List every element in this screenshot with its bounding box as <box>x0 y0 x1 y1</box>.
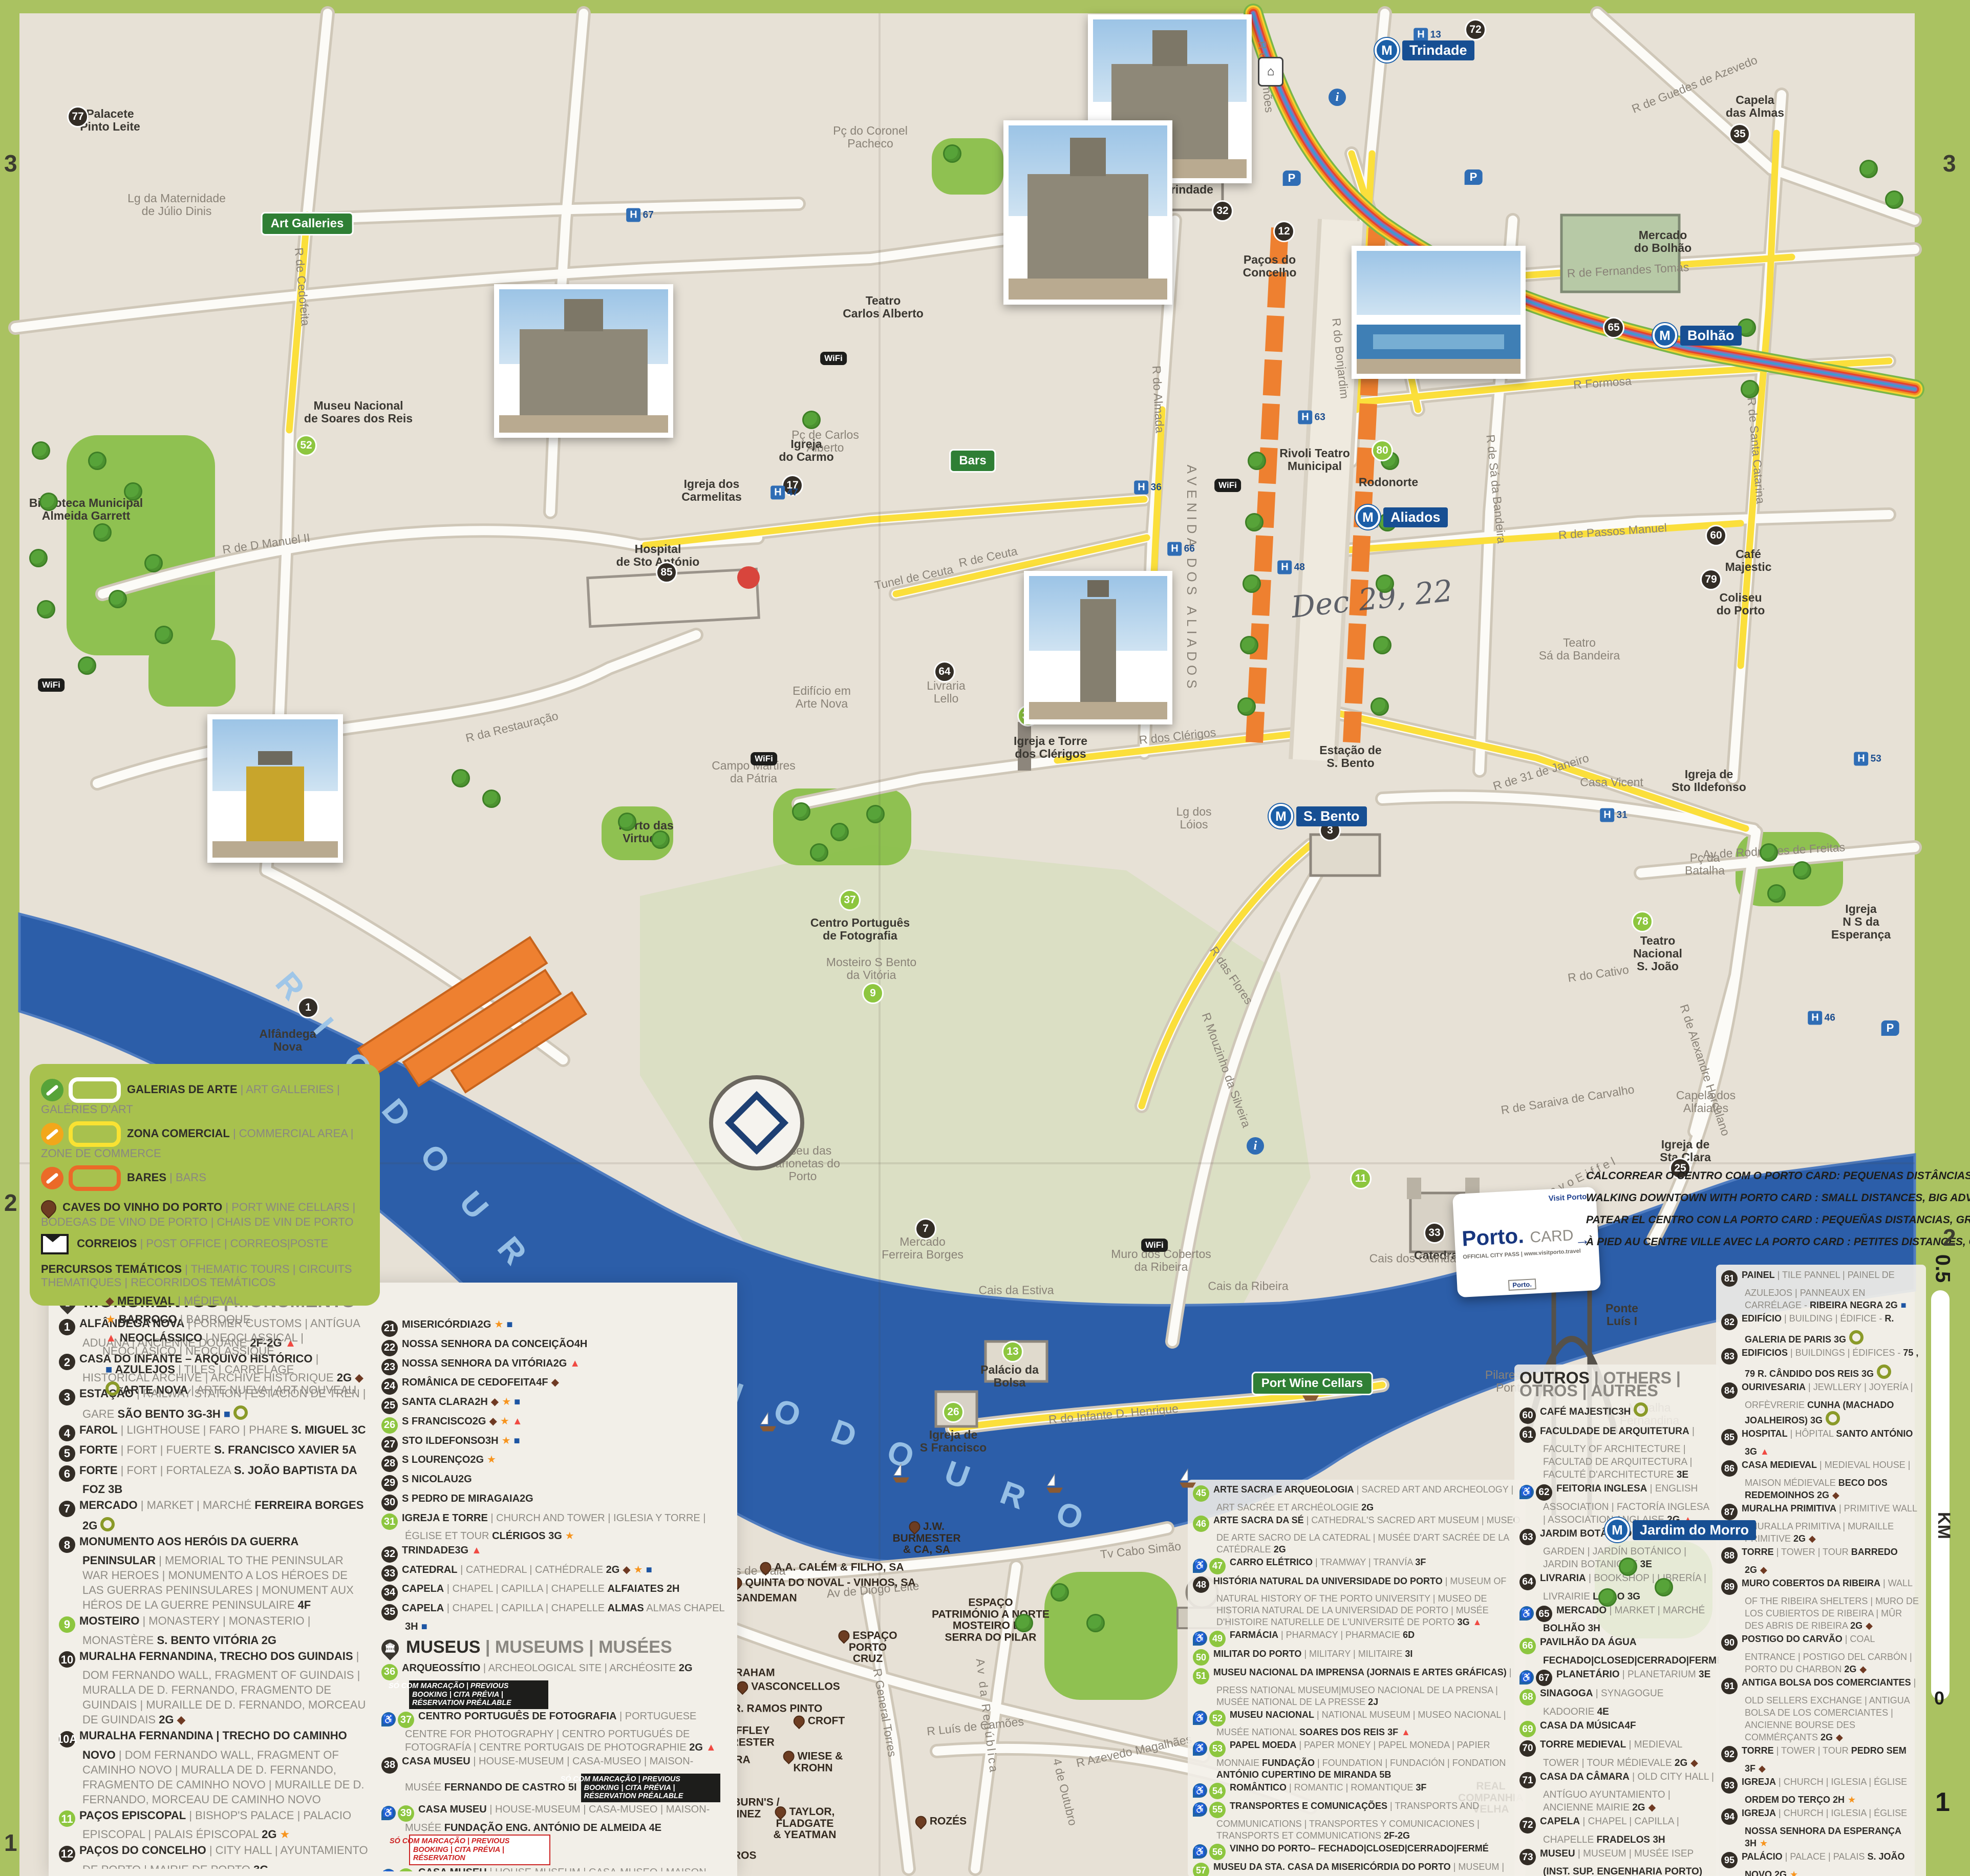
tree-icon <box>1619 1558 1637 1576</box>
medieval-diamond-icon: ◆ <box>1832 1490 1839 1500</box>
map-label: Lg da Maternidade de Júlio Dinis <box>127 192 226 218</box>
legend-item-67: ♿67PLANETÁRIO | PLANETARIUM 3E <box>1519 1668 1714 1687</box>
map-marker-85[interactable]: 85 <box>656 562 677 583</box>
porto-card-slogan: CALCORREAR O CENTRO COM O PORTO CARD: PE… <box>1586 1168 1934 1182</box>
item-number-badge: 28 <box>381 1456 398 1472</box>
legend-item-68: 68SINAGOGA | SYNAGOGUE KADOORIE 4E <box>1519 1687 1714 1718</box>
baroque-star-icon: ★ <box>494 1319 503 1330</box>
map-label: Mosteiro S Bento da Vitória <box>826 956 916 982</box>
legend-item-48: 48HISTÓRIA NATURAL DA UNIVERSIDADE DO PO… <box>1193 1575 1521 1629</box>
metro-station-label: Bolhão <box>1680 326 1742 346</box>
map-marker-32[interactable]: 32 <box>1212 200 1233 222</box>
tree-icon <box>943 144 961 163</box>
map-marker-12[interactable]: 12 <box>1273 221 1295 242</box>
legend-item-84: 84OURIVESARIA | JEWLLERY | JOYERÍA | ORF… <box>1721 1381 1921 1426</box>
map-label: Museu Nacional de Soares dos Reis <box>304 399 413 425</box>
baroque-star-icon: ★ <box>502 1396 511 1408</box>
legend-others-column: OUTROS | OTHERS | OTROS | AUTRES 60CAFÉ … <box>1514 1365 1719 1876</box>
medieval-diamond-icon: ◆ <box>1859 1664 1867 1674</box>
legend-item-82: 82EDIFÍCIO | BUILDING | ÉDIFICE - R. GAL… <box>1721 1312 1921 1346</box>
neoclassical-triangle-icon: ▲ <box>706 1742 716 1753</box>
legend-item-73: 73MUSEU | MUSEUM | MUSÉE ISEP (INST. SUP… <box>1519 1847 1714 1876</box>
item-number-badge: 56 <box>1209 1844 1226 1860</box>
legend-area-row: ZONA COMERCIAL | COMMERCIAL AREA | ZONE … <box>41 1121 369 1160</box>
item-number-badge: 72 <box>1519 1817 1536 1834</box>
booking-note: SÓ COM MARCAÇÃO | PREVIOUS BOOKING | CIT… <box>409 1680 548 1709</box>
wifi-icon[interactable]: WiFi <box>1141 1239 1168 1252</box>
photo-inset-tower <box>1024 571 1172 724</box>
wine-cellar-label: CROFT <box>794 1716 845 1728</box>
item-number-badge: 47 <box>1209 1558 1226 1574</box>
area-pill-icon <box>69 1077 121 1103</box>
legend-item-94: 94IGREJA | CHURCH | IGLESIA | ÉGLISE NOS… <box>1721 1807 1921 1849</box>
envelope-icon <box>41 1234 69 1254</box>
hotel-icon-53[interactable]: H53 <box>1854 752 1881 766</box>
scale-1: 1 <box>1935 1787 1950 1818</box>
legend-item-4: 4FAROL | LIGHTHOUSE | FARO | PHARE S. MI… <box>59 1422 371 1442</box>
legend-areas-panel: GALERIAS DE ARTE | ART GALLERIES | GALÉR… <box>30 1064 380 1306</box>
map-sign-port-wine-cellars[interactable]: Port Wine Cellars <box>1252 1372 1373 1395</box>
legend-tour-row: ■ AZULEJOS | TILES | CARRELAGE <box>102 1363 369 1376</box>
item-number-badge: 65 <box>1536 1606 1552 1622</box>
map-label: Mercado Ferreira Borges <box>882 1235 963 1261</box>
map-label: Igreja de Sto Ildefonso <box>1672 768 1746 794</box>
metro-logo-icon: M <box>1653 323 1677 348</box>
porto-card-slogan: PATEAR EL CENTRO CON LA PORTO CARD : PEQ… <box>1586 1212 1934 1226</box>
porto-card-chip: Porto. <box>1508 1278 1536 1291</box>
street-label: R da Restauração <box>464 710 560 745</box>
area-circle-icon <box>41 1167 63 1189</box>
neoclassical-triangle-icon: ▲ <box>1760 1446 1769 1457</box>
legend-item-45: 45ARTE SACRA E ARQUEOLOGIA | SACRED ART … <box>1193 1484 1521 1513</box>
street-label: R de D Manuel II <box>222 531 311 557</box>
item-number-badge: 63 <box>1519 1529 1536 1545</box>
map-marker-80[interactable]: 80 <box>1372 440 1393 461</box>
street-label: R General Torres <box>871 1668 899 1758</box>
map-marker-1[interactable]: 1 <box>297 997 319 1018</box>
legend-item-27: 27STO ILDEFONSO3H★■ <box>381 1435 730 1453</box>
map-marker-11[interactable]: 11 <box>1350 1168 1372 1189</box>
street-label: R do Bonjardim <box>1330 317 1351 399</box>
map-marker-9[interactable]: 9 <box>862 983 884 1004</box>
legend-tour-row: ◆ MEDIEVAL | MÉDIEVAL <box>102 1294 369 1308</box>
map-marker-13[interactable]: 13 <box>1002 1341 1023 1362</box>
visit-porto-label: Visit Porto. <box>1548 1192 1589 1203</box>
wine-cellar-label: ESPAÇO PORTO CRUZ <box>838 1630 897 1665</box>
item-number-badge: 24 <box>381 1378 398 1395</box>
item-number-badge: 33 <box>381 1565 398 1582</box>
tree-icon <box>78 656 96 675</box>
tree-icon <box>88 452 106 470</box>
museum-pin-icon: 🏛 <box>381 1636 402 1660</box>
hotel-icon-36[interactable]: H36 <box>1134 481 1162 495</box>
map-marker-33[interactable]: 33 <box>1424 1222 1445 1244</box>
hotel-icon-46[interactable]: H46 <box>1808 1011 1835 1025</box>
legend-item-8: 8MONUMENTO AOS HERÓIS DA GUERRA PENINSUL… <box>59 1534 371 1613</box>
area-pill-icon <box>69 1121 121 1147</box>
neoclassical-triangle-icon: ▲ <box>1401 1727 1410 1737</box>
wheelchair-icon: ♿ <box>381 1806 396 1820</box>
tree-icon <box>1371 697 1389 716</box>
legend-item-61: 61FACULDADE DE ARQUITETURA | FACULTY OF … <box>1519 1425 1714 1482</box>
map-label: Capela das Almas <box>1726 94 1784 119</box>
map-marker-72[interactable]: 72 <box>1465 19 1486 40</box>
azulejos-square-icon: ■ <box>105 1363 112 1376</box>
item-number-badge: 10A <box>59 1731 75 1747</box>
street-label: R das Flores <box>1207 944 1255 1007</box>
item-number-badge: 39 <box>398 1805 414 1822</box>
legend-item-90: 90POSTIGO DO CARVÃO | COAL ENTRANCE | PO… <box>1721 1633 1921 1675</box>
neoclassical-triangle-icon: ▲ <box>472 1545 482 1556</box>
legend-item-25: 25SANTA CLARA2H◆★■ <box>381 1396 730 1414</box>
map-label: Teatro Sá da Bandeira <box>1539 636 1620 662</box>
scale-0-5: 0.5 <box>1931 1254 1954 1283</box>
azulejos-square-icon: ■ <box>506 1319 512 1330</box>
legend-item-10A: 10AMURALHA FERNANDINA | TRECHO DO CAMINH… <box>59 1728 371 1807</box>
street-label: R Azevedo Magalhães <box>1075 1733 1193 1770</box>
item-number-badge: 92 <box>1721 1746 1738 1762</box>
baroque-star-icon: ★ <box>1760 1838 1768 1848</box>
map-label: Rivoli Teatro Municipal <box>1279 447 1350 473</box>
map-sign-art-galleries[interactable]: Art Galleries <box>261 212 354 236</box>
item-number-badge: 53 <box>1209 1741 1226 1757</box>
wine-cellar-icon <box>791 1714 807 1730</box>
map-label: Cais da Ribeira <box>1208 1280 1288 1293</box>
arte-nova-ring-icon <box>100 1517 115 1531</box>
legend-item-71: 71CASA DA CÂMARA | OLD CITY HALL | ANTÍG… <box>1519 1771 1714 1815</box>
item-number-badge: 50 <box>1193 1649 1209 1666</box>
street-label: R dos Clérigos <box>1139 726 1217 747</box>
info-icon[interactable]: i <box>1247 1137 1264 1155</box>
tree-icon <box>29 549 48 567</box>
wheelchair-icon: ♿ <box>381 1712 396 1726</box>
item-number-badge: 86 <box>1721 1460 1738 1477</box>
wheelchair-icon: ♿ <box>1193 1783 1207 1798</box>
map-label: Cais da Estiva <box>978 1284 1054 1297</box>
parking-icon[interactable]: P <box>1881 1020 1899 1036</box>
wheelchair-icon: ♿ <box>1193 1711 1207 1725</box>
item-number-badge: 34 <box>381 1585 398 1601</box>
porto-card[interactable]: Visit Porto. Porto. CARD OFFICIAL CITY P… <box>1452 1187 1601 1297</box>
street-label: R de Ceuta <box>958 545 1019 569</box>
scale-bar <box>1931 1290 1950 1700</box>
legend-item-23: 23NOSSA SENHORA DA VITÓRIA2G▲ <box>381 1357 730 1376</box>
map-marker-79[interactable]: 79 <box>1700 569 1722 590</box>
map-marker-35[interactable]: 35 <box>1729 123 1750 145</box>
hotel-icon-66[interactable]: H66 <box>1167 542 1195 556</box>
map-marker-77[interactable]: 77 <box>67 106 89 127</box>
item-number-badge: 36 <box>381 1664 398 1680</box>
metro-station-label: Aliados <box>1383 507 1448 527</box>
item-number-badge: 5 <box>59 1445 75 1462</box>
item-number-badge: 69 <box>1519 1721 1536 1737</box>
baroque-star-icon: ★ <box>1848 1795 1856 1805</box>
item-number-badge: 4 <box>59 1425 75 1441</box>
wine-cellar-icon <box>913 1814 929 1830</box>
metro-station-bolh-o[interactable]: MBolhão <box>1653 323 1742 348</box>
map-label: Teatro Nacional S. João <box>1633 934 1682 972</box>
map-label: Palácio da Bolsa <box>980 1363 1039 1389</box>
grid-row-2-right: 2 <box>1943 1224 1956 1251</box>
scale-km: KM <box>1934 1512 1954 1539</box>
wifi-icon[interactable]: WiFi <box>38 678 65 692</box>
sailboat-icon <box>757 1411 779 1436</box>
street-label: R do Cativo <box>1567 963 1630 984</box>
map-marker-64[interactable]: 64 <box>934 661 955 683</box>
grid-row-3-left: 3 <box>4 150 17 177</box>
tree-icon <box>482 790 501 808</box>
parking-icon[interactable]: P <box>1283 170 1301 186</box>
hotel-icon-47[interactable]: H47 <box>770 486 798 500</box>
others-header: OUTROS | OTHERS | OTROS | AUTRES <box>1519 1372 1714 1397</box>
street-label: R do Infante D. Henrique <box>1048 1402 1179 1426</box>
museums-header: 🏛MUSEUS | MUSEUMS | MUSÉES <box>381 1639 730 1657</box>
map-label: Igreja dos Carmelitas <box>681 478 742 503</box>
wine-cellar-label: J.W. BURMESTER & CA, SA <box>892 1521 960 1556</box>
map-label: Paços do Concelho <box>1243 253 1297 279</box>
street-label: R do Almada <box>1150 366 1166 434</box>
wheelchair-icon: ♿ <box>1519 1485 1534 1499</box>
tree-icon <box>109 590 127 608</box>
legend-churches2-column: 21MISERICÓRDIA2G★■22NOSSA SENHORA DA CON… <box>381 1318 730 1871</box>
baroque-star-icon: ★ <box>280 1828 290 1841</box>
metro-logo-icon: M <box>1356 505 1380 529</box>
wifi-icon[interactable]: WiFi <box>1214 479 1241 492</box>
legend-tour-row: ★ BARROCO | BARROQUE <box>102 1313 369 1326</box>
tree-icon <box>1243 574 1261 593</box>
porto-card-slogan: À PIED AU CENTRE VILLE AVEC LA PORTO CAR… <box>1586 1234 1934 1248</box>
legend-item-51: 51MUSEU NACIONAL DA IMPRENSA (JORNAIS E … <box>1193 1667 1521 1708</box>
map-marker-7[interactable]: 7 <box>915 1218 936 1240</box>
metro-station-jardim-do-morro[interactable]: MJardim do Morro <box>1605 1518 1756 1542</box>
unesco-world-heritage-badge <box>709 1075 804 1170</box>
wifi-icon[interactable]: WiFi <box>820 352 847 365</box>
item-number-badge: 21 <box>381 1320 398 1337</box>
photo-inset-pool <box>1352 246 1526 379</box>
tree-icon <box>1248 452 1266 470</box>
arte-nova-ring-icon <box>105 1381 120 1396</box>
item-number-badge: 67 <box>1536 1670 1552 1686</box>
legend-item-53: ♿53PAPEL MOEDA | PAPER MONEY | PAPEL MON… <box>1193 1739 1521 1781</box>
item-number-badge: 71 <box>1519 1772 1536 1788</box>
medieval-diamond-icon: ◆ <box>1690 1758 1698 1768</box>
legend-item-21: 21MISERICÓRDIA2G★■ <box>381 1318 730 1337</box>
item-number-badge: 68 <box>1519 1689 1536 1706</box>
area-circle-icon <box>41 1079 63 1101</box>
legend-item-54: ♿54ROMÂNTICO | ROMANTIC | ROMANTIQUE 3F <box>1193 1782 1521 1800</box>
baroque-star-icon: ★ <box>105 1313 116 1326</box>
item-number-badge: 81 <box>1721 1270 1738 1287</box>
street-label: R de 31 de Janeiro <box>1491 752 1590 793</box>
legend-item-22: 22NOSSA SENHORA DA CONCEIÇÃO4H <box>381 1338 730 1356</box>
neoclassical-triangle-icon: ▲ <box>1473 1617 1482 1627</box>
legend-item-26: 26S FRANCISCO2G◆★▲ <box>381 1415 730 1434</box>
legend-item-33: 33CATEDRAL | CATHEDRAL | CATHÉDRALE 2G◆★… <box>381 1564 730 1582</box>
street-label: R Mouzinho da Silveira <box>1200 1011 1253 1129</box>
item-number-badge: 35 <box>381 1604 398 1621</box>
tree-icon <box>810 843 828 862</box>
tree-icon <box>1373 636 1391 654</box>
tree-icon <box>144 554 163 572</box>
legend-others2-column: 81PAINEL | TILE PANNEL | PAINEL DE AZULE… <box>1716 1265 1926 1876</box>
item-number-badge: 83 <box>1721 1348 1738 1365</box>
map-marker-78[interactable]: 78 <box>1632 911 1653 932</box>
legend-item-32: 32TRINDADE3G▲ <box>381 1544 730 1563</box>
map-marker-65[interactable]: 65 <box>1603 317 1624 338</box>
wheelchair-icon: ♿ <box>1519 1670 1534 1685</box>
legend-item-52: ♿52MUSEU NACIONAL | NATIONAL MUSEUM | MU… <box>1193 1709 1521 1739</box>
map-marker-60[interactable]: 60 <box>1705 525 1727 546</box>
legend-item-83: 83EDIFICIOS | BUILDINGS | ÉDIFICES - 75 … <box>1721 1347 1921 1380</box>
street-label: R de Saraiva de Carvalho <box>1500 1083 1635 1117</box>
map-marker-52[interactable]: 52 <box>295 435 317 456</box>
item-number-badge: 89 <box>1721 1579 1738 1595</box>
legend-item-35: 35CAPELA | CHAPEL | CAPILLA | CHAPELLE A… <box>381 1602 730 1633</box>
azulejos-square-icon: ■ <box>1901 1300 1907 1310</box>
wine-cellar-icon <box>758 1560 774 1576</box>
tree-icon <box>830 823 849 841</box>
legend-item-50: 50MILITAR DO PORTO | MILITARY | MILITAIR… <box>1193 1648 1521 1666</box>
legend-tour-row: ARTE NOVA | ARTE NUEVA | ART NOUVEAU <box>102 1381 369 1397</box>
map-label: Centro Português de Fotografia <box>810 916 910 942</box>
metro-station-aliados[interactable]: MAliados <box>1356 505 1448 529</box>
left-luggage-icon[interactable]: ⌂ <box>1258 57 1283 87</box>
legend-item-93: 93IGREJA | CHURCH | IGLESIA | ÉGLISE ORD… <box>1721 1776 1921 1806</box>
neoclassical-triangle-icon: ▲ <box>105 1331 117 1344</box>
map-marker-37[interactable]: 37 <box>839 889 861 911</box>
item-number-badge: 37 <box>398 1712 414 1728</box>
map-label: Lg dos Lóios <box>1176 805 1211 831</box>
metro-station-label: S. Bento <box>1296 806 1367 826</box>
arte-nova-ring-icon <box>1849 1330 1864 1345</box>
arte-nova-ring-icon <box>1634 1402 1648 1417</box>
item-number-badge: 46 <box>1193 1516 1209 1532</box>
item-number-badge: 51 <box>1193 1668 1209 1685</box>
area-pill-icon <box>69 1165 121 1191</box>
street-label: R de Cedofeita <box>292 247 312 326</box>
metro-station-trindade[interactable]: MTrindade <box>1375 38 1474 62</box>
tree-icon <box>618 813 636 831</box>
map-label: Café Majestic <box>1725 548 1772 573</box>
metro-station-label: Jardim do Morro <box>1633 1520 1756 1540</box>
azulejos-square-icon: ■ <box>224 1408 230 1420</box>
metro-logo-icon: M <box>1605 1518 1630 1542</box>
wine-cellar-label: WIESE & KROHN <box>783 1751 843 1774</box>
map-label: Casa Vicent <box>1580 776 1643 789</box>
wheelchair-icon: ♿ <box>1193 1559 1207 1573</box>
item-number-badge: 52 <box>1209 1710 1226 1726</box>
legend-item-37: ♿37CENTRO PORTUGUÊS DE FOTOGRAFIA | PORT… <box>381 1710 730 1755</box>
tree-icon <box>802 411 821 429</box>
wifi-icon[interactable]: WiFi <box>751 752 777 765</box>
legend-item-30: 30S PEDRO DE MIRAGAIA2G <box>381 1493 730 1511</box>
legend-item-28: 28S LOURENÇO2G★ <box>381 1454 730 1472</box>
tree-icon <box>32 441 50 460</box>
street-label: R Luís de Camões <box>926 1715 1024 1738</box>
hotel-icon-48[interactable]: H48 <box>1277 561 1305 574</box>
legend-item-31: 31IGREJA E TORRE | CHURCH AND TOWER | IG… <box>381 1512 730 1543</box>
item-number-badge: 38 <box>381 1757 398 1774</box>
street-label: R de Alexandre Herculano <box>1678 1003 1732 1137</box>
map-sign-bars[interactable]: Bars <box>949 449 996 473</box>
neoclassical-triangle-icon: ▲ <box>512 1416 523 1427</box>
legend-item-91: 91ANTIGA BOLSA DOS COMERCIANTES | OLD SE… <box>1721 1676 1921 1743</box>
legend-item-64: 64LIVRARIA | BOOKSHOP | LIBRERÍA | LIVRA… <box>1519 1572 1714 1603</box>
tree-icon <box>1760 843 1778 862</box>
tree-icon <box>1655 1578 1673 1596</box>
photo-inset-hall <box>1003 120 1172 305</box>
legend-item-55: ♿55TRANSPORTES E COMUNICAÇÕES | TRANSPOR… <box>1193 1800 1521 1842</box>
map-label: Mercado do Bolhão <box>1634 229 1691 254</box>
booking-note: SÓ COM MARCAÇÃO | PREVIOUS BOOKING | CIT… <box>581 1774 720 1802</box>
metro-station-s-bento[interactable]: MS. Bento <box>1269 804 1367 828</box>
legend-item-12: 12PAÇOS DO CONCELHO | CITY HALL | AYUNTA… <box>59 1843 371 1869</box>
tree-icon <box>1859 160 1878 178</box>
street-label: R de Sá da Bandeira <box>1484 434 1508 544</box>
tree-icon <box>155 626 173 644</box>
item-number-badge: 7 <box>59 1501 75 1517</box>
medieval-diamond-icon: ◆ <box>1759 1763 1766 1774</box>
item-number-badge: 32 <box>381 1546 398 1563</box>
baroque-star-icon: ★ <box>1790 1869 1798 1876</box>
item-number-badge: 60 <box>1519 1408 1536 1424</box>
baroque-star-icon: ★ <box>500 1416 509 1427</box>
hotel-icon-67[interactable]: H67 <box>626 208 654 222</box>
parking-icon[interactable]: P <box>1465 169 1483 185</box>
legend-item-69: 69CASA DA MÚSICA4F <box>1519 1719 1714 1738</box>
legend-item-47: ♿47CARRO ELÉTRICO | TRAMWAY | TRANVÍA 3F <box>1193 1557 1521 1574</box>
hotel-icon-31[interactable]: H31 <box>1600 808 1628 822</box>
legend-item-72: 72CAPELA | CHAPEL | CAPILLA | CHAPELLE F… <box>1519 1815 1714 1846</box>
medieval-diamond-icon: ◆ <box>551 1377 559 1388</box>
legend-item-39: ♿39CASA MUSEU | HOUSE-MUSEUM | CASA-MUSE… <box>381 1803 730 1865</box>
item-number-badge: 94 <box>1721 1808 1738 1825</box>
arte-nova-ring-icon <box>1826 1411 1840 1425</box>
item-number-badge: 55 <box>1209 1802 1226 1818</box>
wine-cellar-label: ROZÉS <box>915 1816 967 1828</box>
street-label: R de Santa Catarina <box>1745 397 1767 504</box>
porto-card-brand: Porto. CARD <box>1461 1221 1574 1251</box>
legend-item-88: 88TORRE | TOWER | TOUR BARREDO 2G◆ <box>1721 1546 1921 1576</box>
legend-item-10: 10MURALHA FERNANDINA, TRECHO DOS GUINDAI… <box>59 1649 371 1728</box>
legend-item-36: 36ARQUEOSSÍTIO | ARCHEOLOGICAL SITE | AR… <box>381 1662 730 1709</box>
map-label: Ponte Luís I <box>1605 1302 1638 1328</box>
legend-item-9: 9MOSTEIRO | MONASTERY | MONASTERIO | MON… <box>59 1613 371 1648</box>
area-circle-icon <box>41 1123 63 1145</box>
item-number-badge: 22 <box>381 1340 398 1356</box>
map-label: Estação de S. Bento <box>1319 744 1381 770</box>
legend-item-38: 38CASA MUSEU | HOUSE-MUSEUM | CASA-MUSEO… <box>381 1755 730 1802</box>
sailboat-icon <box>1176 1467 1199 1493</box>
legend-item-57: 57MUSEU DA STA. CASA DA MISERICÓRDIA DO … <box>1193 1861 1521 1876</box>
street-label: R Formosa <box>1573 375 1632 392</box>
legend-item-5: 5FORTE | FORT | FUERTE S. FRANCISCO XAVI… <box>59 1442 371 1462</box>
item-number-badge: 9 <box>59 1616 75 1633</box>
neoclassical-triangle-icon: ▲ <box>570 1358 580 1369</box>
map-marker-26[interactable]: 26 <box>943 1401 964 1423</box>
street-label: R de Passos Manuel <box>1558 521 1667 542</box>
info-icon[interactable]: i <box>1329 89 1346 106</box>
legend-museums2-column: 45ARTE SACRA E ARQUEOLOGIA | SACRED ART … <box>1188 1480 1526 1876</box>
map-label: Igreja do Carmo <box>779 438 833 463</box>
map-label: Igreja N S da Esperança <box>1831 903 1891 941</box>
tree-icon <box>1885 190 1903 209</box>
item-number-badge: 91 <box>1721 1678 1738 1694</box>
hotel-icon-63[interactable]: H63 <box>1298 411 1325 424</box>
tree-icon <box>792 802 810 821</box>
legend-item-7: 7MERCADO | MARKET | MARCHÉ FERREIRA BORG… <box>59 1498 371 1533</box>
wine-cellar-label: QUINTA DO NOVAL - VINHOS, SA <box>731 1577 916 1589</box>
